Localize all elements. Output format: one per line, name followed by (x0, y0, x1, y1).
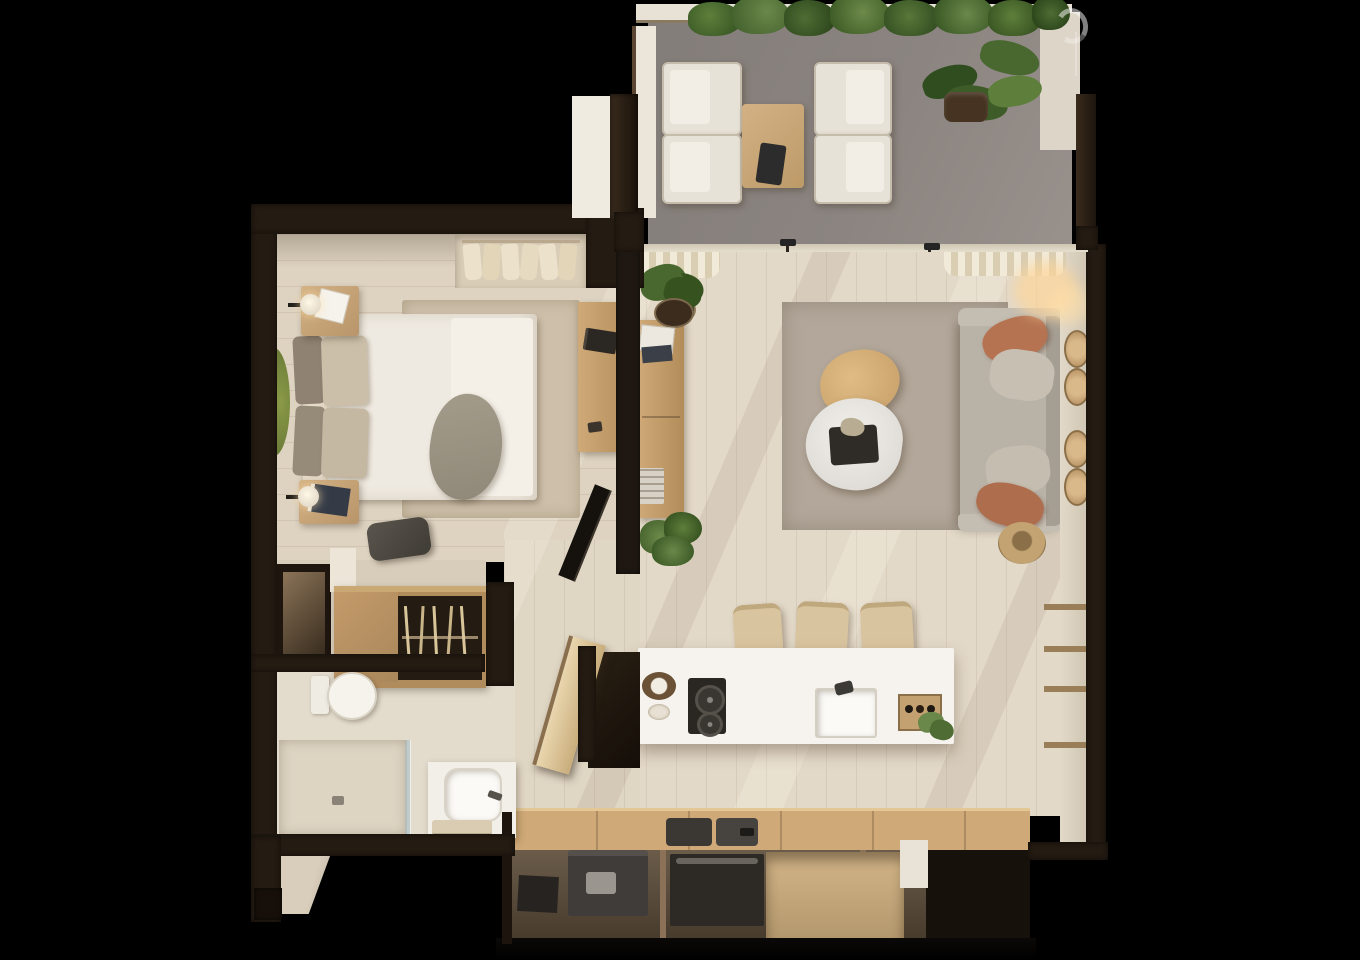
hedge-plant-icon (784, 0, 836, 36)
wall-kitchen-end (578, 646, 596, 762)
walk-in-shower (279, 740, 407, 836)
coffee-machine-cup-area (586, 872, 616, 894)
wall-left-outer (251, 214, 277, 842)
lounge-chair (662, 134, 742, 204)
plant-leaf (977, 35, 1043, 81)
kitchen-sink (815, 688, 877, 738)
lounge-chair (814, 134, 892, 204)
hedge-plant-icon (830, 0, 890, 34)
fruit-bowl (642, 672, 676, 700)
plant-leaf (986, 72, 1044, 111)
hedge-plant-icon (732, 0, 790, 34)
oven-handle (676, 858, 758, 864)
shower-drain (332, 796, 344, 805)
wall-top-bedroom (251, 204, 589, 234)
cooktop (688, 678, 726, 734)
console-books (640, 326, 674, 368)
hanging-clothes (557, 243, 577, 280)
plant-leaf (652, 536, 694, 566)
table-lamp-icon (288, 294, 322, 316)
cabinet-divider (660, 850, 666, 942)
entry-steps (279, 848, 333, 914)
wall-right-outer (1086, 244, 1106, 860)
terrace-potted-plant (922, 40, 1042, 126)
sofa (958, 308, 1062, 534)
hanging-clothes (538, 243, 559, 281)
hedge-plant-icon (934, 0, 994, 34)
plant-pot (944, 92, 988, 122)
console-shelf-line (642, 416, 680, 418)
table-tray (755, 142, 786, 185)
wall-wardrobe-right (486, 582, 514, 686)
island-plant (918, 708, 954, 744)
faucet-icon (834, 680, 854, 696)
hanger-rail (402, 636, 478, 639)
hanging-clothes (519, 243, 540, 281)
tray-slot (740, 828, 754, 836)
open-shelf-compartment (766, 852, 904, 942)
burner-icon (697, 712, 723, 737)
closet-niche (455, 234, 587, 288)
watermark-stem (1075, 32, 1077, 76)
chair-cushion (846, 70, 884, 124)
wall-room-divider (616, 232, 640, 574)
console-books (636, 468, 664, 504)
counter-cutaway-interior (504, 850, 1030, 942)
burner-icon (695, 685, 725, 715)
plant-leaf (928, 717, 957, 743)
console-plant (638, 264, 704, 328)
wall-bottom-right (1028, 842, 1108, 860)
right-dark-compartment (926, 850, 1030, 942)
lamp-shade (300, 294, 321, 315)
chair-cushion (670, 142, 710, 192)
bottle-dot (905, 705, 913, 713)
wall-bathroom-bottom (251, 834, 515, 856)
pillow (321, 407, 369, 479)
ceiling-lamp-glow (1048, 286, 1090, 324)
wall-entry-foot (254, 888, 282, 920)
laundry-niche (277, 564, 331, 662)
toilet (311, 672, 373, 718)
toilet-bowl (327, 672, 377, 720)
tray-plant-sprig (840, 417, 866, 437)
built-in-oven (670, 854, 764, 926)
hanging-clothes (462, 243, 482, 280)
lamp-shade (298, 486, 319, 507)
table-tray (829, 424, 880, 465)
woven-basket (998, 522, 1046, 564)
counter-inset-tray (716, 818, 758, 846)
hedge-plant-icon (884, 0, 940, 36)
pillow (321, 335, 369, 407)
wall-door-corner-post (614, 212, 644, 252)
wall-post-top (610, 94, 638, 220)
wall-door-right-post (1076, 226, 1098, 250)
door-handle-icon (780, 239, 796, 246)
counter-inset-tray (666, 818, 712, 846)
towel (432, 820, 492, 835)
planter-hedge (688, 0, 1070, 40)
bed (303, 316, 537, 500)
laundry-niche-interior (283, 572, 325, 654)
counter-white-divider (900, 840, 928, 888)
floor-grass-plant (640, 510, 702, 568)
chair-cushion (670, 70, 710, 124)
counter-left-edge-wall (502, 812, 512, 944)
wall-bathroom-top (251, 654, 485, 672)
chair-cushion (846, 142, 884, 192)
hanging-clothes (501, 243, 520, 280)
table-lamp-icon (286, 486, 320, 508)
book (641, 345, 672, 364)
counter-bottom-shadow (496, 938, 1036, 960)
lounge-chair (814, 62, 892, 136)
outdoor-coffee-table (742, 104, 804, 188)
screenshot-root: { "title": "3d-apartment-floor-plan-rend… (0, 0, 1360, 960)
plant-pot (654, 298, 694, 328)
desk-item (587, 421, 602, 433)
dark-storage-box (517, 875, 559, 913)
small-plate (648, 704, 670, 720)
coffee-machine (568, 850, 648, 916)
terrace-railing-right (1076, 94, 1096, 246)
shower-glass-panel (405, 740, 411, 836)
counter-top (504, 808, 1030, 855)
kitchen-island (638, 648, 954, 744)
door-handle-icon (924, 243, 940, 250)
laptop (582, 328, 618, 355)
lounge-chair (662, 62, 742, 136)
wall-outside-face-white (572, 96, 612, 218)
sliding-glass-track (640, 244, 1088, 252)
hanging-clothes (482, 243, 501, 280)
